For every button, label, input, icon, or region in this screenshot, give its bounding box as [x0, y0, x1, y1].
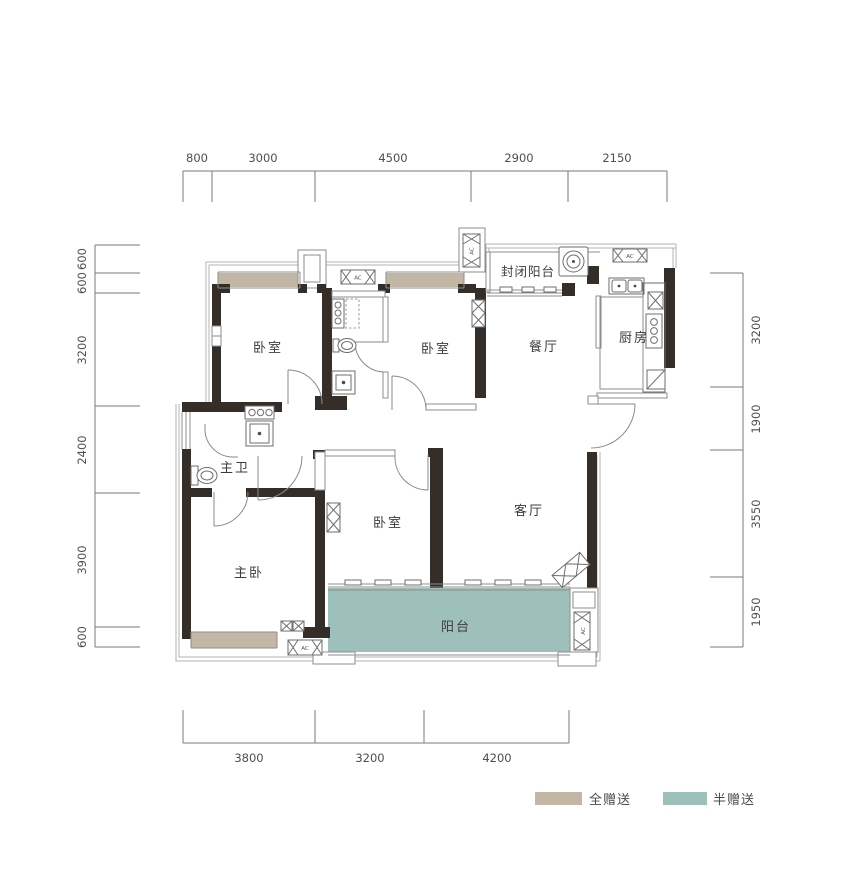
full-gift-window-bedroom1: [218, 273, 300, 287]
legend-swatch-full-gift: [535, 792, 582, 805]
dim-left-3900: 3900: [75, 545, 89, 574]
dim-top-2900: 2900: [504, 151, 533, 165]
door-bedroom3: [395, 455, 428, 490]
dim-left-600a: 600: [75, 248, 89, 270]
dimension-chain-right: 3200 1900 3550 1950: [710, 273, 763, 647]
dim-right-3200: 3200: [749, 315, 763, 344]
door-entry: [591, 404, 635, 448]
ac-unit-bottom: AC: [288, 640, 322, 655]
ac-unit-top-shaft: AC: [463, 234, 480, 267]
room-label-bedroom-bottom: 卧室: [373, 515, 403, 531]
door-master-bedroom: [214, 492, 248, 526]
toilet-master-icon: [197, 468, 217, 484]
duct-bedroom3: [327, 503, 340, 532]
vanity-counter-master: [245, 406, 274, 419]
ac-label: AC: [470, 247, 476, 255]
legend-label-full-gift: 全赠送: [589, 792, 631, 808]
room-label-bedroom-top-left: 卧室: [253, 340, 283, 356]
toilet-shared-icon: [338, 339, 356, 353]
dim-top-3000: 3000: [248, 151, 277, 165]
dim-top-800: 800: [186, 151, 208, 165]
dim-top-2150: 2150: [602, 151, 631, 165]
dim-bottom-3200: 3200: [355, 751, 384, 765]
room-label-bedroom-top-middle: 卧室: [421, 341, 451, 357]
room-label-enclosed-balcony: 封闭阳台: [501, 264, 555, 279]
dim-left-600c: 600: [75, 626, 89, 648]
door-shared-bath: [355, 342, 385, 372]
ac-label: AC: [301, 646, 309, 652]
ac-unit-balcony: AC: [574, 612, 590, 650]
duct-bedroom2: [472, 300, 485, 327]
ac-unit-kitchen: AC: [613, 249, 647, 262]
legend: 全赠送 半赠送: [535, 792, 755, 808]
corner-unit-living: [552, 552, 590, 587]
room-label-balcony: 阳台: [441, 620, 471, 635]
door-bedroom2: [392, 376, 426, 410]
full-gift-window-bedroom2: [386, 273, 464, 287]
dim-right-3550: 3550: [749, 499, 763, 528]
ac-label: AC: [354, 276, 362, 282]
dim-left-3200: 3200: [75, 335, 89, 364]
dim-bottom-4200: 4200: [482, 751, 511, 765]
legend-swatch-half-gift: [663, 792, 707, 805]
step-right: [558, 652, 596, 666]
dimension-chain-top: 800 3000 4500 2900 2150: [183, 151, 667, 202]
shower-door-master-bath: [205, 424, 238, 457]
room-label-dining: 餐厅: [529, 339, 559, 355]
room-label-kitchen: 厨房: [619, 330, 649, 346]
room-label-master-bath: 主卫: [220, 461, 250, 476]
dim-top-4500: 4500: [378, 151, 407, 165]
dim-left-600b: 600: [75, 272, 89, 294]
legend-label-half-gift: 半赠送: [713, 793, 755, 808]
floor-plan-canvas: 800 3000 4500 2900 2150 600 600 3200 240…: [0, 0, 850, 893]
full-gift-window-master: [191, 632, 277, 648]
dim-right-1900: 1900: [749, 404, 763, 433]
dimension-chain-left: 600 600 3200 2400 3900 600: [75, 245, 140, 648]
room-label-master-bedroom: 主卧: [234, 566, 264, 581]
ac-label: AC: [581, 627, 587, 635]
dimension-chain-bottom: 3800 3200 4200: [183, 710, 569, 765]
dim-right-1950: 1950: [749, 597, 763, 626]
ac-label: AC: [626, 254, 634, 260]
room-label-living: 客厅: [514, 503, 544, 519]
dim-left-2400: 2400: [75, 435, 89, 464]
ac-unit-top-niche: AC: [341, 270, 375, 284]
dim-bottom-3800: 3800: [234, 751, 263, 765]
floor-plan-page: 800 3000 4500 2900 2150 600 600 3200 240…: [0, 0, 850, 893]
